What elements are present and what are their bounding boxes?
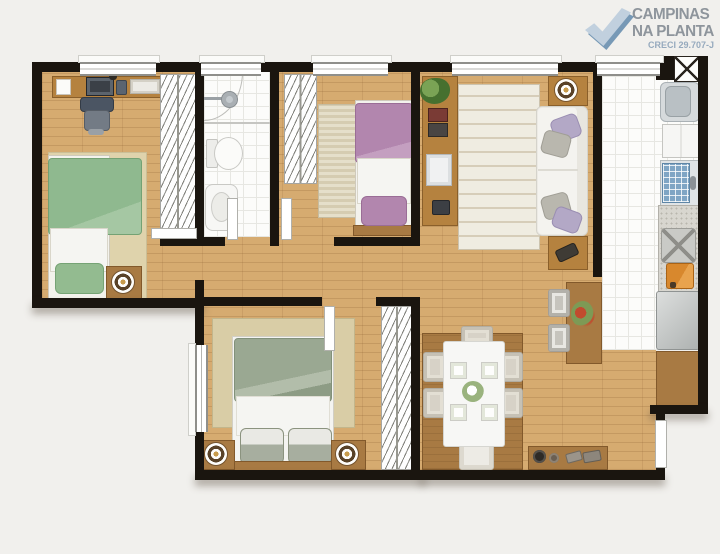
toilet-bowl [214,137,243,170]
keyboard [130,79,160,94]
master-duvet [234,338,332,402]
entry-door [655,420,667,468]
door-leaf-master [324,306,335,351]
refrigerator [656,291,700,350]
wall-dining-right-upper [656,412,665,420]
wall-dining-right-lower [656,466,665,480]
wall-bedroom2-bottom [334,237,420,246]
paper-sheet [56,79,71,95]
bar-chair-2 [548,324,570,352]
floor-plan-canvas: CAMPINAS NA PLANTA CRECI 29.707-J [0,0,720,554]
bar-flower-vase [571,301,595,327]
decor-bowl-small [549,453,559,463]
office-chair-base [88,129,104,135]
wall-dining-bottom [420,470,665,480]
shower-divider [204,122,270,124]
wall-right [698,56,708,414]
bedroom2-bed-frame [353,225,413,236]
tv [426,154,452,186]
bedroom1-wardrobe [160,74,196,232]
wall-left [32,62,42,308]
picture-frame-1 [428,108,448,122]
door-leaf-bedroom2 [281,198,292,240]
shower-head-icon [221,91,238,108]
dish-rack [662,163,690,203]
kitchen-lower-cabinet [656,351,700,406]
wall-top-3 [261,62,313,72]
wall-living-kitchen [593,62,602,277]
bedroom1-duvet [48,158,142,235]
window-living [452,62,558,76]
living-rug [458,84,540,250]
logo-text: CAMPINAS NA PLANTA CRECI 29.707-J [632,6,714,50]
wall-master-dining [411,297,420,480]
bedroom1-pillow [55,263,104,294]
office-chair-seat [84,110,110,131]
speaker [432,200,450,215]
bedroom1-table-lamp [112,271,134,293]
plate-3 [450,404,467,421]
bar-chair-1 [548,289,570,317]
wall-bathroom-bedroom2 [270,62,279,246]
logo-line-2: NA PLANTA [632,23,710,40]
wall-bedroom1-bottom [32,298,204,308]
bedroom2-pillow [361,196,407,226]
logo-line-1: CAMPINAS [632,6,710,23]
logo-creci: CRECI 29.707-J [632,40,714,50]
phone [116,80,127,95]
board-handle [670,282,676,288]
wall-top-5 [558,62,597,72]
kitchen-faucet [690,176,696,190]
plate-1 [450,362,467,379]
flower-centerpiece [462,381,484,402]
wall-top-4 [388,62,452,72]
bedroom2-rug [318,104,360,218]
cooktop [661,228,696,263]
decor-bowl-large [533,450,546,463]
monitor [86,77,114,96]
kitchen-cabinet-upper [662,124,700,158]
washing-machine-door [665,86,691,117]
window-bedroom1 [80,62,156,76]
master-pillow-left [240,428,284,464]
wall-bedroom2-living [411,62,420,246]
master-wardrobe [381,306,413,470]
picture-frame-2 [428,123,448,137]
wall-master-bottom [195,470,425,480]
wall-bedroom1-right [195,62,204,237]
window-bathroom [201,62,261,76]
window-kitchen [597,62,660,76]
living-table-lamp [555,79,577,101]
master-lamp-right [336,443,358,465]
outside-mask [0,308,195,554]
bedroom2-duvet [355,103,413,163]
window-bedroom2 [313,62,388,76]
logo: CAMPINAS NA PLANTA CRECI 29.707-J [584,4,714,54]
door-leaf-bathroom [227,198,238,240]
bedroom2-wardrobe [284,74,317,184]
door-leaf-bedroom1 [151,228,197,239]
plate-2 [481,362,498,379]
wall-master-top-left [195,297,322,306]
master-lamp-left [205,443,227,465]
sofa-seat-divider [538,169,578,171]
window-master [195,345,208,432]
duct-shaft [674,56,700,82]
master-pillow-right [288,428,332,464]
plate-4 [481,404,498,421]
